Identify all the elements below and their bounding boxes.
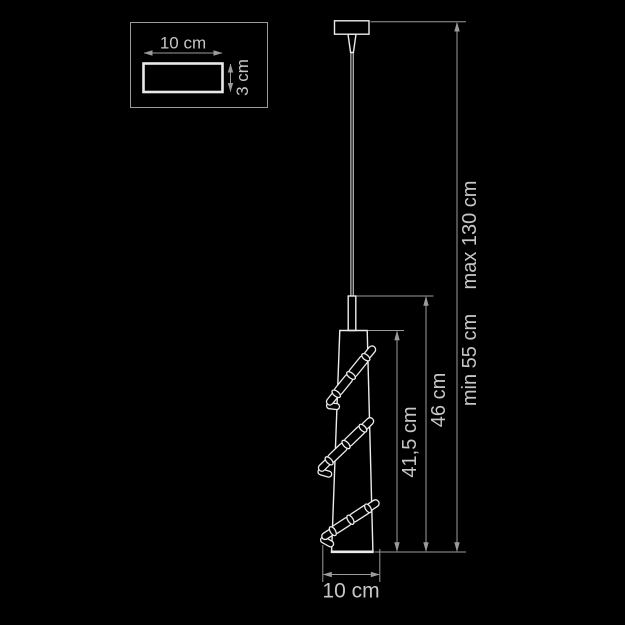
canopy-detail-inset: 10 cm 3 cm [131,23,268,108]
arrow-down-icon [423,542,428,552]
canopy-width-label: 10 cm [160,34,206,53]
dimension-suspension-range: max 130 cm min 55 cm [454,22,481,552]
min-suspension-label: min 55 cm [459,314,481,406]
dimension-fixture-height: 46 cm [423,296,450,552]
pendant-lamp-dimension-drawing: 10 cm 3 cm [0,0,625,625]
arrow-right-icon [371,572,380,577]
inset-depth-dimension: 3 cm [228,59,252,96]
max-suspension-label: max 130 cm [459,181,481,290]
ceiling-canopy [335,21,370,34]
arrow-right-icon [214,50,223,55]
spiral-wrap-bottom [316,497,386,551]
arrow-down-icon [394,542,399,552]
arrow-up-icon [394,331,399,341]
arrow-left-icon [144,50,153,55]
socket-tube [348,296,356,331]
canopy-depth-label: 3 cm [233,59,252,96]
canopy-cross-section [144,64,223,93]
shade-height-label: 41,5 cm [399,406,421,477]
cable-gripper [348,34,356,52]
suspension-cable [351,53,353,297]
lamp-outline [313,21,386,552]
arrow-up-icon [423,296,428,306]
spiral-wrap-top [321,343,384,415]
arrow-down-icon [454,542,459,552]
drawing-canvas: 10 cm 3 cm [0,0,625,625]
shade-diameter-label: 10 cm [322,580,379,603]
arrow-left-icon [323,572,332,577]
dimension-shade-height: 41,5 cm [394,331,421,553]
dimension-shade-diameter: 10 cm [322,545,379,603]
inset-width-dimension: 10 cm [144,34,223,56]
fixture-height-label: 46 cm [428,373,450,427]
arrow-up-icon [454,22,459,32]
dimension-annotations: max 130 cm min 55 cm 46 cm 41,5 cm 10 cm [322,22,481,603]
